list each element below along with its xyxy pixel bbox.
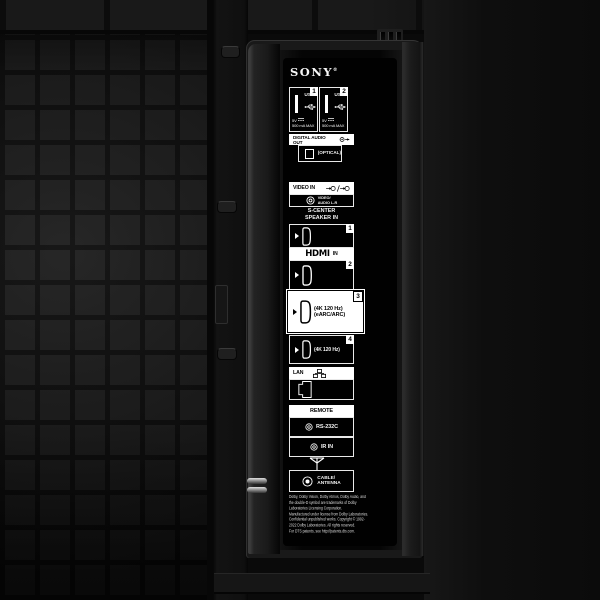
usb-current: 500 mA MAX — [322, 123, 344, 128]
bay-right-frame — [402, 42, 424, 556]
usb-slot[interactable] — [295, 95, 298, 113]
minijack-icon — [306, 196, 315, 205]
remote-header: REMOTE — [289, 405, 354, 417]
back-cover-grid-texture — [0, 0, 214, 600]
hdmi-port-3[interactable]: 3 (4K 120 Hz) (eARC/ARC) — [287, 290, 364, 333]
lan-network-icon — [313, 369, 326, 378]
antenna-symbol-icon — [309, 457, 325, 470]
port-number-badge: 4 — [346, 335, 354, 344]
hdmi-connector-icon — [299, 300, 312, 324]
bottom-ledge — [214, 573, 430, 594]
cable-antenna-port[interactable]: CABLE/ ANTENNA — [289, 470, 354, 492]
usb-port-2[interactable]: 2 USB 5V 500 mA MAX — [319, 87, 348, 132]
usb-power-rating: 5V 500 mA MAX — [292, 117, 314, 129]
usb-slot[interactable] — [325, 95, 328, 113]
hdmi-in-label: IN — [333, 251, 338, 257]
hdmi-port-4-label: (4K 120 Hz) — [314, 347, 340, 353]
port-number-badge: 1 — [346, 224, 354, 233]
dolby-legal-text: Dolby, Dolby Vision, Dolby Atmos, Dolby … — [289, 495, 393, 535]
dc-symbol-icon — [298, 117, 304, 122]
audio-out-icon — [339, 136, 350, 143]
hdmi-port-3-label: (4K 120 Hz) (eARC/ARC) — [314, 306, 345, 318]
usb-power-rating: 5V 500 mA MAX — [322, 117, 344, 129]
hdmi-connector-icon — [301, 340, 312, 359]
insert-arrow-icon — [295, 233, 299, 239]
optical-port-icon — [305, 149, 314, 159]
digital-audio-out-label: DIGITAL AUDIO OUT — [293, 135, 335, 145]
hdmi-port-4[interactable]: 4 (4K 120 Hz) — [289, 335, 354, 364]
usb-label: USB — [332, 93, 347, 98]
hdmi-port-1[interactable]: 1 — [289, 224, 354, 248]
hdmi-in-banner: HDMI IN — [289, 248, 354, 260]
connector-panel: SONY® 1 USB 5V 500 mA MAX 2 USB 5V 500 m… — [283, 58, 397, 546]
video-in-label: VIDEO IN — [293, 185, 315, 191]
video-audio-jack-label: VIDEO/ AUDIO L-R — [318, 196, 338, 205]
usb-labels: USB — [302, 93, 317, 116]
hdmi-logo: HDMI — [305, 249, 330, 259]
usb-icon — [304, 103, 316, 111]
lan-header: LAN — [289, 367, 354, 379]
usb-label: USB — [302, 93, 317, 98]
cover-latch[interactable] — [247, 478, 267, 498]
lan-label: LAN — [293, 370, 303, 376]
remote-label: REMOTE — [310, 408, 333, 414]
video-in-out-icons — [326, 185, 350, 192]
usb-current: 500 mA MAX — [292, 123, 314, 128]
video-in-header: VIDEO IN — [289, 182, 354, 194]
lan-port[interactable] — [289, 379, 354, 400]
port-number-badge: 3 — [353, 291, 363, 302]
cover-clip — [217, 201, 237, 213]
insert-arrow-icon — [295, 347, 299, 353]
registered-mark: ® — [333, 68, 338, 73]
ethernet-port-icon — [298, 381, 312, 398]
s-center-speaker-note: S-CENTER SPEAKER IN — [289, 208, 354, 221]
cover-clip — [215, 285, 228, 324]
optical-label: (OPTICAL) — [318, 151, 341, 155]
usb-port-1[interactable]: 1 USB 5V 500 mA MAX — [289, 87, 318, 132]
cover-clip — [221, 46, 240, 58]
usb-labels: USB — [332, 93, 347, 116]
brand-name: SONY — [290, 65, 333, 79]
background-right-area — [424, 0, 600, 600]
optical-out-port[interactable]: (OPTICAL) — [298, 145, 342, 162]
hdmi-connector-icon — [301, 227, 312, 246]
tv-back-connector-photo: SONY® 1 USB 5V 500 mA MAX 2 USB 5V 500 m… — [0, 0, 600, 600]
rs232c-jack[interactable]: RS-232C — [289, 417, 354, 437]
port-number-badge: 2 — [346, 260, 354, 269]
digital-audio-out-header: DIGITAL AUDIO OUT — [289, 134, 354, 145]
insert-arrow-icon — [295, 272, 299, 278]
coax-connector-icon — [302, 476, 313, 487]
minijack-icon — [305, 423, 313, 431]
usb-icon — [334, 103, 346, 111]
ir-in-label: IR IN — [321, 444, 333, 450]
sony-logo: SONY® — [290, 65, 338, 79]
cover-clip — [217, 348, 237, 360]
rs232c-label: RS-232C — [316, 424, 338, 430]
hdmi-connector-icon — [301, 265, 313, 286]
video-audio-jack[interactable]: VIDEO/ AUDIO L-R — [289, 194, 354, 207]
cable-antenna-label: CABLE/ ANTENNA — [317, 476, 340, 487]
minijack-icon — [310, 443, 318, 451]
ir-in-jack[interactable]: IR IN — [289, 437, 354, 457]
insert-arrow-icon — [293, 309, 297, 315]
hdmi-port-2[interactable]: 2 — [289, 260, 354, 290]
dc-symbol-icon — [328, 117, 334, 122]
